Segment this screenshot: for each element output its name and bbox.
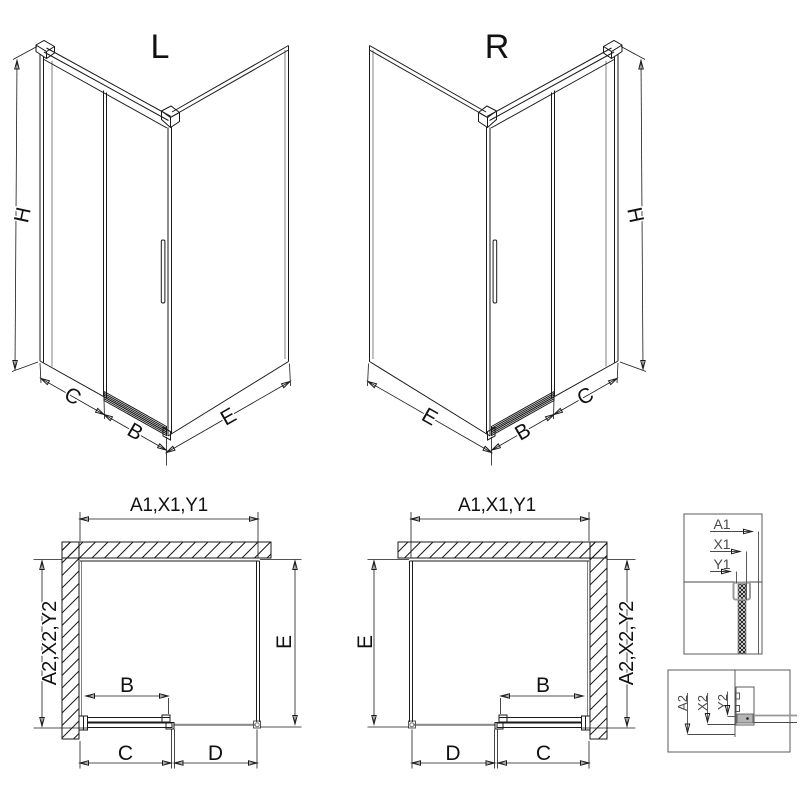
dim-label-install-planL: A2,X2,Y2: [39, 601, 61, 686]
iso-view-left-labels: L H C B E: [10, 28, 240, 445]
iso-view-right-geometry: [368, 41, 647, 466]
glass-outline: [80, 561, 260, 722]
dim-label-side-planR: E: [354, 635, 377, 649]
dim-label-door-right: B: [511, 419, 535, 446]
view-title-right: R: [485, 28, 510, 66]
dim-label-side-left: E: [217, 404, 241, 431]
wall-outlines: [62, 542, 271, 739]
dim-label-width-planR: A1,X1,Y1: [458, 495, 536, 516]
dim-label-width-planL: A1,X1,Y1: [130, 495, 208, 516]
dim-label-d-planL: D: [208, 742, 223, 765]
dim-label-door-planL: B: [120, 674, 134, 697]
dim-label-height-left: H: [10, 205, 36, 225]
dim-label-fixed-left: C: [60, 383, 85, 410]
iso-dimension-lines: [12, 47, 291, 466]
sliding-door-assembly: [79, 715, 261, 730]
dim-label-c-planL: C: [118, 742, 133, 765]
detail-view-glass-section: A1 X1 Y1: [684, 514, 762, 654]
view-title-left: L: [151, 28, 170, 66]
shower-enclosure-drawing: L H C B E R H E B C: [0, 0, 800, 800]
dim-label-fixed-right: C: [573, 383, 598, 410]
door-handle: [161, 240, 165, 303]
dim-label-height-right: H: [622, 205, 648, 225]
wall-hatch-fills: [62, 542, 607, 739]
dim-label-door-left: B: [123, 419, 147, 446]
iso-view-left-geometry: [12, 41, 291, 466]
iso-view-right-labels: R H E B C: [418, 28, 648, 445]
ref-label-x1: X1: [713, 536, 730, 552]
glass-panel-section: [738, 584, 746, 654]
dim-label-install-planR: A2,X2,Y2: [616, 601, 638, 686]
technical-drawing-sheet: L H C B E R H E B C: [0, 0, 800, 800]
detail-view-floor-profile: Y2 X2 A2: [668, 670, 797, 752]
dim-label-d-planR: D: [445, 742, 460, 765]
dim-label-c-planR: C: [536, 742, 551, 765]
dim-label-door-planR: B: [536, 674, 550, 697]
dim-label-side-right: E: [418, 404, 442, 431]
ref-label-a1: A1: [713, 516, 730, 532]
dim-label-side-planL: E: [273, 635, 296, 649]
floor-rail-bar: [737, 714, 753, 723]
ref-label-y1: Y1: [713, 556, 730, 572]
